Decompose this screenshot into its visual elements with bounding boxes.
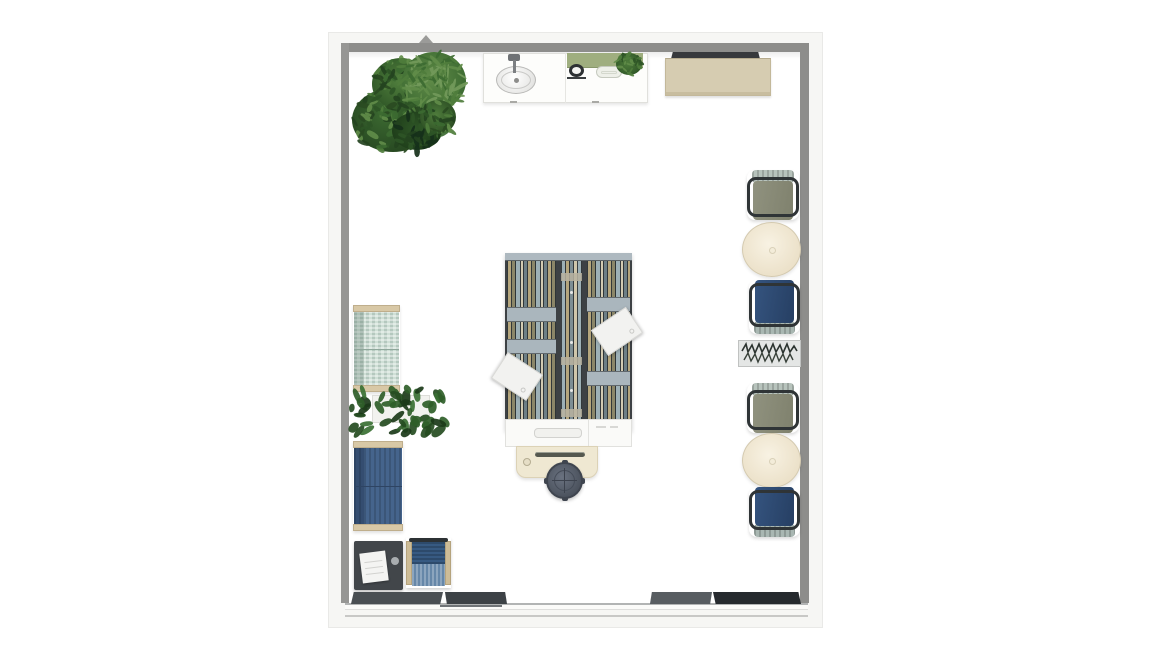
book-column-center <box>561 261 582 422</box>
wall-right <box>800 43 809 603</box>
sink[interactable] <box>496 66 536 94</box>
stool-cross <box>552 480 577 481</box>
desk-grommet <box>523 458 531 466</box>
shelf-divider <box>587 371 630 386</box>
desk-slot <box>535 452 585 457</box>
paper-detail <box>628 328 635 335</box>
shelf-top-band <box>505 253 632 261</box>
shelf-divider <box>507 339 556 354</box>
notepad <box>359 551 388 584</box>
vine-plant[interactable] <box>350 390 445 436</box>
round-table-2[interactable] <box>742 433 801 488</box>
faucet-stem <box>513 60 516 73</box>
tray-detail <box>601 71 617 74</box>
sliding-door-panel-4[interactable] <box>713 592 801 604</box>
paper-detail <box>520 387 527 394</box>
drawer-handle-slot <box>534 428 582 438</box>
stool-nub <box>581 478 585 484</box>
chair-arm-frame <box>749 283 800 327</box>
wall-notch <box>419 35 433 43</box>
side-table-black[interactable] <box>354 541 403 590</box>
sofa-wood-trim <box>353 441 403 448</box>
armchair-armrest <box>445 541 451 585</box>
credenza[interactable] <box>665 58 771 96</box>
sink-drain <box>514 78 519 83</box>
lounge-chair-olive-2[interactable] <box>747 383 799 433</box>
counter-seam <box>565 53 566 103</box>
kettle-icon[interactable] <box>569 64 584 77</box>
credenza-shadow-edge <box>666 92 770 95</box>
notepad-line <box>365 566 383 569</box>
shelf-peg <box>570 291 573 294</box>
sofa-wood-trim <box>353 305 400 312</box>
table-center-detail <box>769 247 776 254</box>
armchair-navy[interactable] <box>406 538 451 588</box>
cup <box>391 557 399 565</box>
loveseat-sage[interactable] <box>353 305 400 392</box>
stool-nub <box>544 478 548 484</box>
shelf-segment <box>561 273 582 281</box>
sliding-door-panel-2[interactable] <box>445 592 507 604</box>
shelf-divider <box>507 307 556 322</box>
armchair-seat <box>412 564 445 586</box>
sliding-door-panel-1[interactable] <box>351 592 443 604</box>
drawer-detail <box>610 426 618 428</box>
door-track <box>345 603 808 617</box>
counter-mark <box>510 101 517 103</box>
table-center-detail <box>769 458 776 465</box>
kettle-base <box>567 77 586 79</box>
loveseat-navy[interactable] <box>353 441 403 531</box>
counter-mark <box>592 101 599 103</box>
drawer-divider <box>588 420 589 446</box>
drawer-unit[interactable] <box>505 419 632 447</box>
floor-plan-canvas <box>0 0 1166 656</box>
round-table-1[interactable] <box>742 222 801 277</box>
sofa-wood-trim <box>353 524 403 531</box>
scribble-wall-art[interactable] <box>738 340 801 367</box>
lounge-chair-olive-1[interactable] <box>747 170 799 220</box>
sofa-seam <box>354 486 402 487</box>
notepad-line <box>364 560 382 563</box>
door-rail-shadow <box>440 605 502 607</box>
scribble-marks <box>739 341 800 366</box>
lounge-chair-navy-2[interactable] <box>749 487 800 537</box>
armchair-back <box>412 542 445 564</box>
wall-top <box>341 43 809 52</box>
book-column-left <box>507 261 556 422</box>
drawer-detail <box>596 426 606 428</box>
notepad-line <box>366 572 384 575</box>
lounge-chair-navy-1[interactable] <box>749 280 800 334</box>
chair-arm-frame <box>747 390 799 430</box>
sliding-door-panel-3[interactable] <box>650 592 712 604</box>
chair-arm-frame <box>747 177 799 217</box>
office-stool[interactable] <box>546 462 583 499</box>
stool-nub <box>562 460 568 464</box>
small-counter-plant[interactable] <box>616 53 642 75</box>
wall-left <box>341 43 349 603</box>
sofa-seam <box>354 349 399 350</box>
shelf-peg <box>570 389 573 392</box>
chair-arm-frame <box>749 490 800 530</box>
shelf-segment <box>561 409 582 417</box>
large-plant-foliage[interactable] <box>420 100 456 134</box>
stool-nub <box>562 497 568 501</box>
shelf-segment <box>561 357 582 365</box>
shelf-peg <box>570 341 573 344</box>
